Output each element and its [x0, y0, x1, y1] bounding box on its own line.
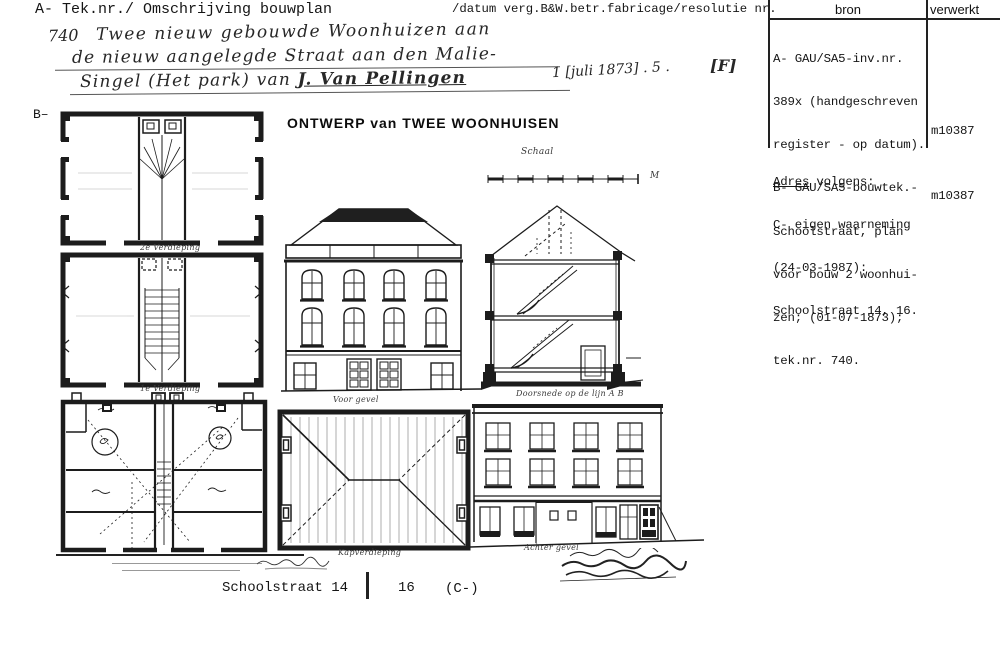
adres-line: (24-03-1987): [773, 261, 925, 275]
handwritten-annotation-squiggle [255, 556, 355, 574]
bron-line: tek.nr. 740. [773, 354, 925, 368]
handwritten-number: 740 [48, 25, 79, 45]
footer-address-right: 16 [398, 580, 415, 596]
scale-bar [486, 172, 648, 186]
adres-entry: Adres volgens: C- eigen waarneming (24-0… [773, 146, 925, 348]
handwritten-date: 1 [juli 1873] . 5 . [552, 59, 671, 81]
table-column-divider [926, 0, 928, 148]
adres-rest: volgens: [809, 175, 874, 189]
scanned-document: A- Tek.nr./ Omschrijving bouwplan /datum… [0, 0, 1000, 649]
f-mark: [F] [710, 56, 737, 75]
roof-plan [277, 409, 471, 551]
cross-section [481, 198, 649, 394]
facade-label: Voor gevel [333, 395, 379, 404]
handwritten-line1: Twee nieuw gebouwde Woonhuizen aan [96, 19, 491, 45]
column-header-bron: bron [770, 2, 926, 17]
drawing-title: ONTWERP van TWEE WOONHUISEN [287, 115, 560, 131]
bron-line: 389x (handgeschreven [773, 95, 925, 109]
table-left-border [768, 0, 770, 148]
verwerkt-code-b: m10387 [931, 189, 974, 203]
section-label: Doorsnede op de lijn A B [516, 389, 624, 398]
footer-divider-bar [366, 572, 369, 599]
floor-plan-ground [58, 392, 270, 560]
adres-line: Schoolstraat 14, 16. [773, 304, 925, 318]
handwritten-line2: de nieuw aangelegde Straat aan den Malie… [72, 44, 497, 68]
plan-top-label: 2e Verdieping [140, 243, 200, 252]
roof-plan-label: Kapverdieping [338, 548, 401, 557]
measure-bracket-line-2 [122, 570, 240, 571]
floor-plan-1e-verdieping [60, 252, 264, 389]
handwritten-line3: Singel (Het park) van J. Van Pellingen [80, 68, 466, 92]
column-header-verwerkt: verwerkt [930, 2, 979, 17]
table-header-underline [768, 18, 1000, 20]
floor-plan-2e-verdieping [60, 111, 264, 247]
schaal-label: Schaal [521, 147, 553, 157]
approval-signature-squiggle [556, 548, 706, 590]
verwerkt-code-a: m10387 [931, 124, 974, 138]
footer-address-left: Schoolstraat 14 [222, 580, 348, 596]
handwritten-line3-pre: Singel (Het park) van [80, 70, 298, 92]
handwritten-owner-name: J. Van Pellingen [297, 68, 466, 90]
measure-bracket-line-1 [112, 563, 262, 564]
header-right-text: /datum verg.B&W.betr.fabricage/resolutie… [452, 2, 777, 16]
footer-suffix: (C-) [445, 581, 479, 597]
adres-line: C- eigen waarneming [773, 218, 925, 232]
front-facade-elevation [281, 193, 483, 399]
adres-label: Adres [773, 175, 809, 189]
margin-label-b: B– [33, 107, 49, 122]
bron-line: A- GAU/SA5-inv.nr. [773, 52, 925, 66]
header-left-text: A- Tek.nr./ Omschrijving bouwplan [35, 1, 332, 18]
rear-facade-elevation [470, 399, 708, 559]
scale-unit-label: M [650, 171, 660, 181]
adres-heading: Adres volgens: [773, 175, 925, 189]
